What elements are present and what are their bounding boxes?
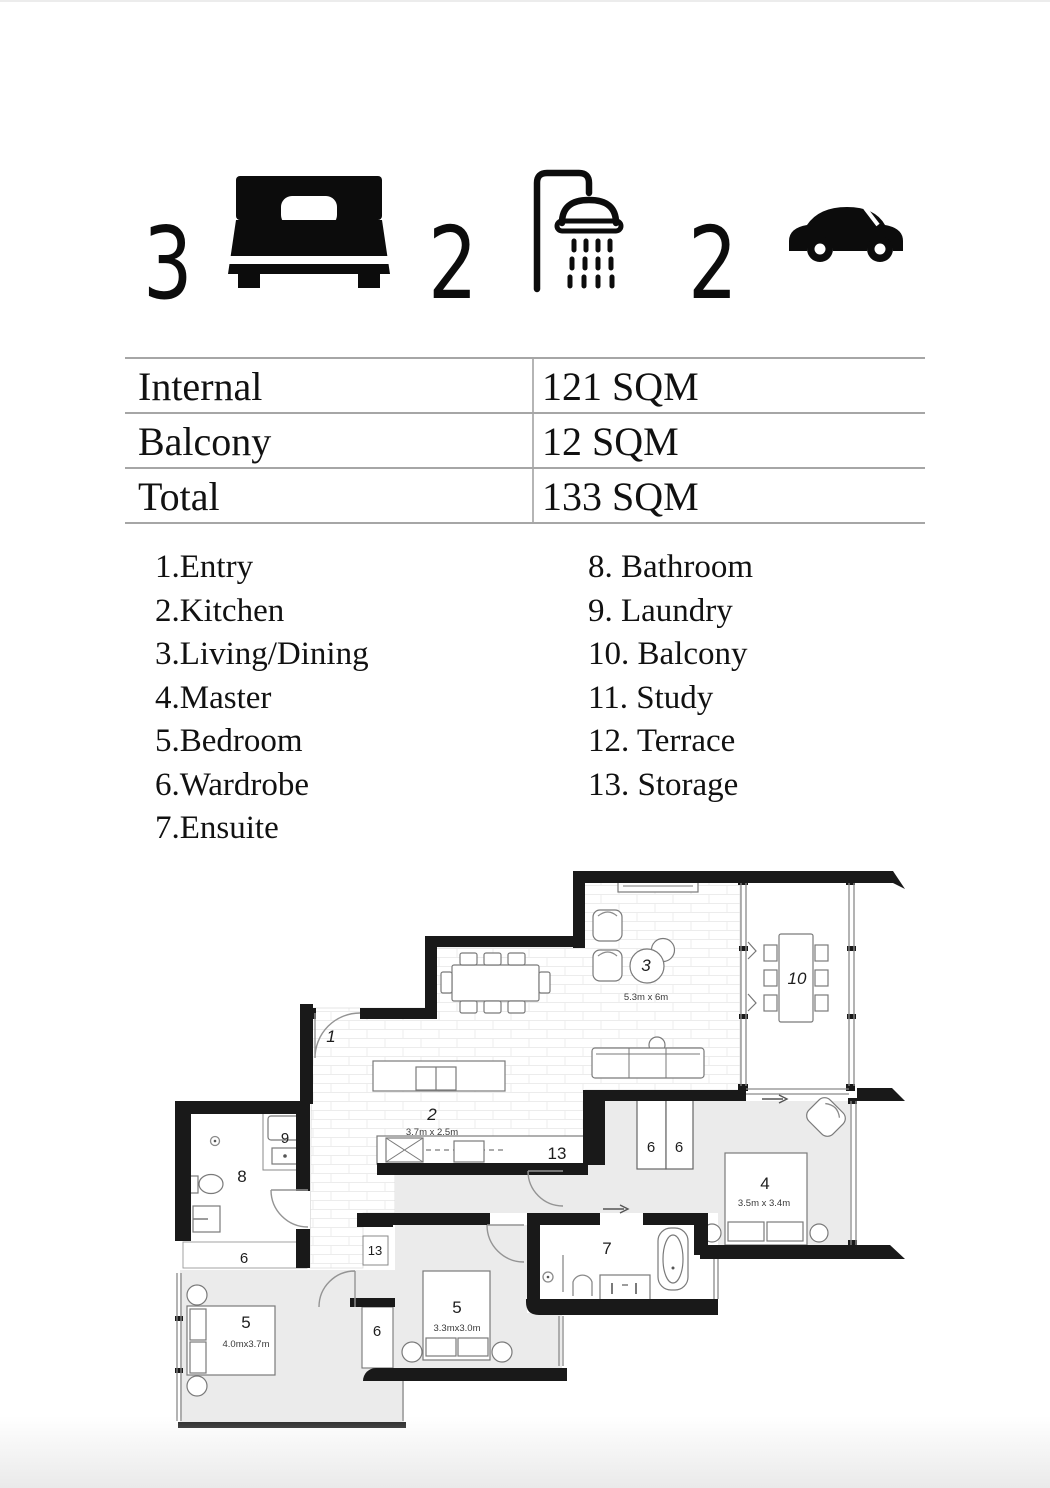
room-label-storage: 13 — [368, 1243, 382, 1258]
row-label: Total — [138, 473, 220, 520]
floorplan-page: 3 2 2 — [0, 0, 1050, 1488]
page-fade — [0, 1416, 1050, 1488]
bedside-table — [810, 1224, 828, 1242]
room-label-kitchen: 2 — [426, 1105, 437, 1124]
room-label-wardrobe: 6 — [373, 1323, 381, 1340]
room-dims-living: 5.3m x 6m — [624, 992, 668, 1003]
bedside-table — [402, 1342, 422, 1362]
bed-icon — [228, 176, 390, 288]
bedside-table — [187, 1376, 207, 1396]
room-label-balcony: 10 — [788, 969, 807, 988]
room-label-laundry: 9 — [281, 1130, 289, 1147]
room-label-bedroom: 5 — [241, 1313, 250, 1332]
legend-item: 10. Balcony — [588, 633, 753, 677]
room-label-wardrobe: 6 — [240, 1250, 248, 1267]
room-label-wardrobe: 6 — [675, 1139, 683, 1156]
legend-item: 3.Living/Dining — [155, 633, 369, 677]
bedrooms-count: 3 — [143, 214, 193, 314]
bedside-table — [492, 1342, 512, 1362]
room-dims-bedroom: 4.0mx3.7m — [223, 1339, 270, 1350]
car-icon — [785, 195, 907, 263]
chair — [815, 995, 828, 1011]
chair — [484, 953, 501, 965]
chair — [460, 1001, 477, 1013]
pillow — [190, 1309, 206, 1340]
legend-item: 11. Study — [588, 677, 753, 721]
vanity — [600, 1275, 650, 1302]
row-value: 12 SQM — [542, 418, 679, 465]
legend-item: 1.Entry — [155, 546, 369, 590]
hall-floor — [395, 1175, 605, 1213]
chair — [764, 945, 777, 961]
chair — [508, 953, 525, 965]
chair — [508, 1001, 525, 1013]
car-spaces-count: 2 — [688, 214, 738, 314]
pillow — [426, 1338, 456, 1356]
wardrobe-b — [666, 1093, 693, 1169]
bathtub-inner — [663, 1235, 683, 1283]
room-label-wardrobe: 6 — [647, 1139, 655, 1156]
room-label-bedroom: 5 — [452, 1298, 461, 1317]
chair — [539, 972, 550, 993]
legend-item: 4.Master — [155, 677, 369, 721]
row-label: Internal — [138, 363, 262, 410]
legend-item: 9. Laundry — [588, 590, 753, 634]
dining-table — [452, 965, 539, 1001]
chair — [815, 970, 828, 986]
chair — [764, 995, 777, 1011]
table-row-total: Total 133 SQM — [125, 467, 925, 524]
row-value: 133 SQM — [542, 473, 699, 520]
chair — [764, 970, 777, 986]
armchair — [593, 950, 622, 981]
table-row-internal: Internal 121 SQM — [125, 357, 925, 412]
toilet — [199, 1175, 223, 1194]
room-dims-kitchen: 3.7m x 2.5m — [406, 1127, 458, 1138]
pillow — [458, 1338, 488, 1356]
appliance — [454, 1141, 484, 1162]
legend-item: 2.Kitchen — [155, 590, 369, 634]
chair — [441, 972, 452, 993]
legend-item: 8. Bathroom — [588, 546, 753, 590]
pillow — [767, 1222, 803, 1241]
sofa — [592, 1048, 704, 1078]
legend-item: 6.Wardrobe — [155, 764, 369, 808]
pillow — [190, 1342, 206, 1373]
room-label-storage: 13 — [548, 1144, 567, 1163]
row-label: Balcony — [138, 418, 271, 465]
bedside-table — [187, 1285, 207, 1305]
legend-item: 7.Ensuite — [155, 807, 369, 851]
legend-item: 5.Bedroom — [155, 720, 369, 764]
room-label-ensuite: 7 — [602, 1239, 611, 1258]
room-label-bathroom: 8 — [237, 1167, 246, 1186]
room-label-entry: 1 — [326, 1027, 335, 1046]
armchair — [593, 910, 622, 941]
area-table: Internal 121 SQM Balcony 12 SQM Total 13… — [125, 357, 925, 524]
room-label-living: 3 — [641, 956, 651, 975]
toilet-tank — [190, 1176, 198, 1193]
legend-item: 12. Terrace — [588, 720, 753, 764]
wardrobe-a — [637, 1093, 666, 1169]
bathrooms-count: 2 — [428, 214, 478, 314]
room-dims-bedroom: 3.3mx3.0m — [434, 1323, 481, 1334]
legend-item: 13. Storage — [588, 764, 753, 808]
chair — [460, 953, 477, 965]
chair — [815, 945, 828, 961]
legend-right: 8. Bathroom 9. Laundry 10. Balcony 11. S… — [588, 546, 753, 807]
row-value: 121 SQM — [542, 363, 699, 410]
room-dims-master: 3.5m x 3.4m — [738, 1198, 790, 1209]
table-row-balcony: Balcony 12 SQM — [125, 412, 925, 467]
pillow — [728, 1222, 764, 1241]
floor-plan: 1 2 3.7m x 2.5m 3 5.3m x 6m 10 4 3.5m x … — [160, 858, 905, 1483]
room-label-master: 4 — [760, 1174, 769, 1193]
shower-icon — [527, 167, 645, 293]
chair — [484, 1001, 501, 1013]
legend-left: 1.Entry 2.Kitchen 3.Living/Dining 4.Mast… — [155, 546, 369, 851]
